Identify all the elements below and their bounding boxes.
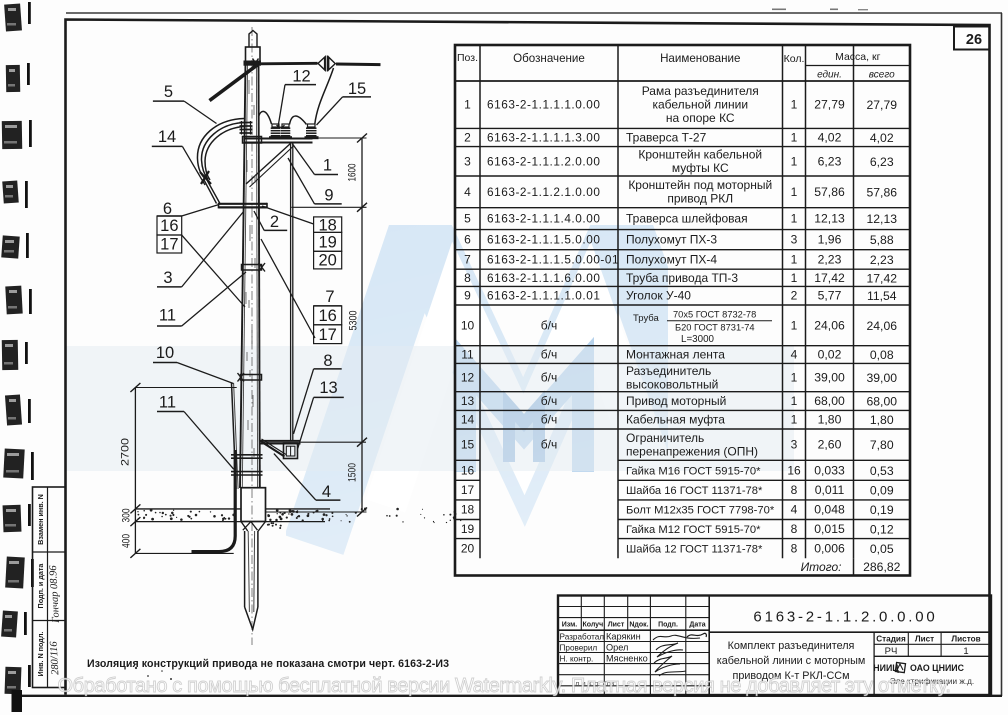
svg-text:4: 4 [322, 483, 331, 501]
svg-text:1: 1 [791, 371, 798, 385]
svg-text:5300: 5300 [348, 311, 360, 331]
svg-text:18: 18 [318, 216, 336, 234]
svg-text:Стадия: Стадия [876, 635, 906, 644]
svg-text:16: 16 [160, 217, 178, 235]
svg-text:1: 1 [791, 271, 798, 285]
svg-text:11: 11 [159, 394, 176, 412]
svg-text:16: 16 [787, 463, 801, 477]
svg-text:4: 4 [464, 185, 471, 199]
svg-text:1: 1 [791, 154, 798, 168]
svg-text:Поз.: Поз. [457, 52, 478, 64]
svg-text:57,86: 57,86 [867, 185, 898, 199]
svg-text:б/ч: б/ч [541, 348, 557, 362]
svg-text:Болт М12х35 ГОСТ 7798-70*: Болт М12х35 ГОСТ 7798-70* [626, 505, 775, 517]
svg-text:3: 3 [791, 438, 798, 452]
svg-text:Полухомут ПХ-3: Полухомут ПХ-3 [626, 233, 717, 247]
svg-text:Лист: Лист [915, 635, 934, 644]
svg-text:Проверил: Проверил [560, 643, 598, 652]
svg-text:20: 20 [318, 252, 336, 270]
svg-text:Подп. и дата: Подп. и дата [36, 563, 45, 609]
svg-text:8: 8 [323, 352, 332, 370]
svg-text:2700: 2700 [120, 438, 132, 466]
svg-text:0,011: 0,011 [815, 483, 845, 497]
svg-text:Монтажная лента: Монтажная лента [626, 348, 725, 362]
svg-text:1: 1 [791, 394, 798, 408]
svg-text:5,77: 5,77 [818, 289, 842, 303]
svg-text:6163-2-1.1.1.4.0.00: 6163-2-1.1.1.4.0.00 [487, 212, 600, 226]
svg-text:6,23: 6,23 [818, 154, 842, 168]
svg-text:18: 18 [461, 503, 475, 517]
svg-text:14: 14 [461, 413, 475, 427]
svg-text:39,00: 39,00 [814, 371, 845, 385]
svg-text:13: 13 [461, 394, 475, 408]
svg-text:муфты КС: муфты КС [672, 161, 729, 175]
svg-text:Шайба 16 ГОСТ 11371-78*: Шайба 16 ГОСТ 11371-78* [626, 485, 763, 497]
svg-text:1: 1 [323, 157, 332, 175]
svg-text:15: 15 [348, 80, 366, 98]
svg-text:Шайба 12 ГОСТ 11371-78*: Шайба 12 ГОСТ 11371-78* [626, 543, 763, 555]
svg-text:4,02: 4,02 [818, 131, 842, 145]
svg-text:12,13: 12,13 [814, 212, 845, 226]
svg-text:0,08: 0,08 [870, 348, 894, 362]
svg-text:Привод моторный: Привод моторный [626, 394, 726, 408]
svg-text:68,00: 68,00 [814, 394, 845, 408]
svg-text:Труба: Труба [633, 313, 660, 324]
svg-text:7: 7 [325, 288, 334, 306]
svg-text:6163-2-1.1.1.5.0.00: 6163-2-1.1.1.5.0.00 [487, 233, 600, 247]
svg-text:ОАО ЦНИИС: ОАО ЦНИИС [910, 663, 965, 673]
svg-text:9: 9 [324, 187, 333, 205]
svg-text:2: 2 [270, 213, 279, 231]
svg-text:Н. контр.: Н. контр. [560, 654, 594, 663]
svg-text:6163-2-1.1.1.2.0.00: 6163-2-1.1.1.2.0.00 [487, 154, 600, 168]
svg-text:280/116: 280/116 [49, 640, 62, 675]
svg-text:2,23: 2,23 [870, 253, 894, 267]
svg-text:9: 9 [464, 289, 471, 303]
svg-text:12: 12 [461, 371, 475, 385]
svg-text:перенапрежения (ОПН): перенапрежения (ОПН) [626, 444, 758, 458]
svg-text:Кронштейн под моторный: Кронштейн под моторный [628, 178, 772, 192]
svg-text:5: 5 [464, 212, 471, 226]
svg-text:0,033: 0,033 [814, 463, 845, 477]
svg-text:5: 5 [164, 83, 173, 101]
svg-text:Мясненко: Мясненко [606, 653, 648, 663]
svg-text:3: 3 [791, 233, 798, 247]
svg-text:Масса, кг: Масса, кг [835, 51, 880, 63]
svg-text:Изм.: Изм. [562, 622, 578, 629]
svg-text:1,96: 1,96 [818, 233, 842, 247]
svg-text:всего: всего [869, 70, 895, 81]
svg-text:б/ч: б/ч [541, 413, 557, 427]
svg-text:Траверса шлейфовая: Траверса шлейфовая [626, 212, 748, 226]
svg-text:6: 6 [163, 200, 172, 218]
svg-text:1: 1 [791, 318, 798, 332]
svg-text:6,23: 6,23 [870, 155, 894, 169]
svg-text:Листов: Листов [951, 635, 980, 644]
svg-text:6163-2-1.1.1.1.0.01: 6163-2-1.1.1.1.0.01 [487, 289, 600, 303]
svg-text:1600: 1600 [347, 164, 359, 182]
svg-text:3: 3 [163, 269, 172, 287]
svg-text:Орел: Орел [606, 642, 628, 652]
svg-text:Взамен инв. N: Взамен инв. N [36, 494, 45, 545]
svg-text:1: 1 [791, 212, 798, 226]
svg-text:16: 16 [318, 307, 336, 325]
svg-text:Кол.: Кол. [784, 53, 805, 65]
svg-text:Гончар 08.96: Гончар 08.96 [48, 564, 62, 624]
svg-text:0,12: 0,12 [870, 523, 894, 537]
svg-text:11,54: 11,54 [867, 289, 897, 303]
svg-text:Кронштейн кабельной: Кронштейн кабельной [638, 148, 762, 162]
svg-text:привод РКЛ: привод РКЛ [667, 192, 733, 206]
svg-text:1,80: 1,80 [870, 413, 894, 427]
svg-text:6163-2-1.1.1.6.0.00: 6163-2-1.1.1.6.0.00 [487, 271, 600, 285]
svg-text:2,60: 2,60 [818, 438, 842, 452]
svg-text:15: 15 [461, 438, 475, 452]
svg-text:19: 19 [318, 233, 336, 251]
svg-text:Комплект разъединителя: Комплект разъединителя [728, 640, 855, 652]
svg-text:8: 8 [791, 483, 798, 497]
svg-text:13: 13 [319, 379, 337, 397]
svg-text:РЧ: РЧ [885, 646, 898, 657]
svg-text:8: 8 [791, 541, 798, 555]
svg-text:7: 7 [464, 252, 471, 266]
svg-text:4: 4 [791, 503, 798, 517]
svg-text:6163-2-1.1.2.0.0.00: 6163-2-1.1.2.0.0.00 [753, 609, 937, 626]
svg-text:Рама разъединителя: Рама разъединителя [642, 84, 759, 98]
svg-text:Инв. N подл.: Инв. N подл. [36, 632, 45, 677]
svg-text:17: 17 [160, 236, 178, 254]
svg-text:Разработал: Разработал [560, 632, 605, 641]
svg-text:Nдок.: Nдок. [629, 622, 648, 629]
svg-text:16: 16 [461, 463, 475, 477]
svg-text:68,00: 68,00 [867, 395, 898, 409]
svg-text:Ограничитель: Ограничитель [626, 431, 704, 445]
svg-text:12,13: 12,13 [867, 212, 898, 226]
svg-text:10: 10 [156, 344, 174, 362]
svg-text:1,80: 1,80 [818, 413, 842, 427]
svg-text:1: 1 [464, 98, 471, 112]
svg-text:Лист: Лист [608, 622, 625, 629]
svg-text:Дата: Дата [689, 622, 705, 629]
svg-text:2: 2 [464, 131, 471, 145]
svg-text:6163-2-1.1.2.1.0.00: 6163-2-1.1.2.1.0.00 [487, 185, 600, 199]
svg-text:Полухомут ПХ-4: Полухомут ПХ-4 [626, 252, 717, 266]
svg-text:70х5 ГОСТ 8732-78: 70х5 ГОСТ 8732-78 [673, 310, 756, 320]
svg-text:14: 14 [158, 128, 176, 146]
svg-text:Колуч: Колуч [582, 622, 603, 629]
svg-text:Обозначение: Обозначение [513, 52, 585, 65]
svg-text:26: 26 [966, 32, 982, 48]
svg-text:на опоре КС: на опоре КС [666, 111, 735, 125]
svg-text:Карякин: Карякин [606, 631, 641, 641]
svg-text:6: 6 [464, 233, 471, 247]
svg-text:Подп.: Подп. [658, 622, 678, 629]
svg-text:Изоляция конструкций привода н: Изоляция конструкций привода не показана… [87, 658, 449, 670]
svg-text:б/ч: б/ч [541, 318, 557, 332]
svg-text:17,42: 17,42 [814, 271, 845, 285]
svg-text:17: 17 [461, 483, 475, 497]
svg-text:27,79: 27,79 [867, 98, 898, 112]
svg-text:19: 19 [461, 522, 475, 536]
svg-text:17: 17 [318, 326, 336, 344]
svg-text:Гайка М12 ГОСТ 5915-70*: Гайка М12 ГОСТ 5915-70* [626, 524, 761, 536]
svg-text:39,00: 39,00 [867, 371, 898, 385]
svg-text:0,006: 0,006 [814, 541, 845, 555]
svg-text:б/ч: б/ч [541, 438, 557, 452]
svg-text:4: 4 [791, 348, 798, 362]
svg-text:0,048: 0,048 [814, 503, 845, 517]
svg-text:б/ч: б/ч [541, 371, 557, 385]
svg-text:0,05: 0,05 [870, 542, 894, 556]
svg-text:0,015: 0,015 [814, 522, 845, 536]
svg-text:высоковольтный: высоковольтный [626, 377, 718, 391]
svg-text:0,53: 0,53 [870, 464, 894, 478]
svg-text:0,02: 0,02 [818, 348, 842, 362]
svg-text:57,86: 57,86 [814, 185, 845, 199]
svg-text:11: 11 [461, 348, 474, 362]
svg-text:3: 3 [464, 154, 471, 168]
svg-text:10: 10 [461, 318, 475, 332]
svg-text:1: 1 [791, 131, 798, 145]
svg-text:24,06: 24,06 [814, 318, 845, 332]
svg-text:1: 1 [791, 413, 798, 427]
svg-text:1: 1 [791, 98, 798, 112]
svg-text:Разъединитель: Разъединитель [626, 364, 711, 378]
svg-text:1500: 1500 [347, 463, 359, 482]
svg-text:6163-2-1.1.1.5.0.00-01: 6163-2-1.1.1.5.0.00-01 [487, 252, 619, 266]
svg-text:Траверса Т-27: Траверса Т-27 [626, 131, 707, 145]
svg-text:27,79: 27,79 [814, 98, 845, 112]
svg-text:8: 8 [464, 271, 471, 285]
svg-text:Уголок У-40: Уголок У-40 [626, 289, 691, 303]
svg-text:17,42: 17,42 [867, 271, 898, 285]
svg-text:5,88: 5,88 [870, 233, 894, 247]
svg-text:L=3000: L=3000 [681, 334, 715, 345]
svg-text:8: 8 [791, 522, 798, 536]
svg-text:2,23: 2,23 [818, 252, 842, 266]
svg-text:0,19: 0,19 [870, 503, 894, 517]
svg-text:7,80: 7,80 [870, 438, 894, 452]
svg-text:Итого:: Итого: [801, 560, 842, 574]
svg-text:б/ч: б/ч [541, 394, 557, 408]
svg-text:11: 11 [159, 307, 176, 325]
svg-text:Наименование: Наименование [660, 52, 740, 65]
svg-text:Гайка М16 ГОСТ 5915-70*: Гайка М16 ГОСТ 5915-70* [626, 465, 761, 477]
svg-text:20: 20 [461, 541, 475, 555]
svg-text:Труба привода ТП-3: Труба привода ТП-3 [626, 271, 738, 285]
svg-text:12: 12 [292, 68, 310, 86]
svg-text:6163-2-1.1.1.1.0.00: 6163-2-1.1.1.1.0.00 [487, 98, 600, 112]
svg-text:2: 2 [791, 289, 798, 303]
svg-text:286,82: 286,82 [863, 560, 900, 574]
svg-text:1: 1 [791, 185, 798, 199]
svg-text:един.: един. [817, 70, 842, 81]
svg-text:300: 300 [121, 509, 133, 523]
svg-text:1: 1 [791, 252, 798, 266]
svg-text:24,06: 24,06 [867, 319, 898, 333]
svg-text:кабельной линии с моторным: кабельной линии с моторным [717, 655, 866, 667]
svg-text:Б20 ГОСТ 8731-74: Б20 ГОСТ 8731-74 [675, 323, 755, 333]
svg-text:0,09: 0,09 [870, 484, 894, 498]
svg-text:Кабельная муфта: Кабельная муфта [626, 413, 725, 427]
svg-text:4,02: 4,02 [870, 131, 894, 145]
svg-text:6163-2-1.1.1.1.3.00: 6163-2-1.1.1.1.3.00 [487, 131, 600, 145]
svg-text:кабельной линии: кабельной линии [652, 98, 748, 112]
svg-text:400: 400 [121, 534, 133, 548]
svg-text:1: 1 [963, 646, 968, 657]
